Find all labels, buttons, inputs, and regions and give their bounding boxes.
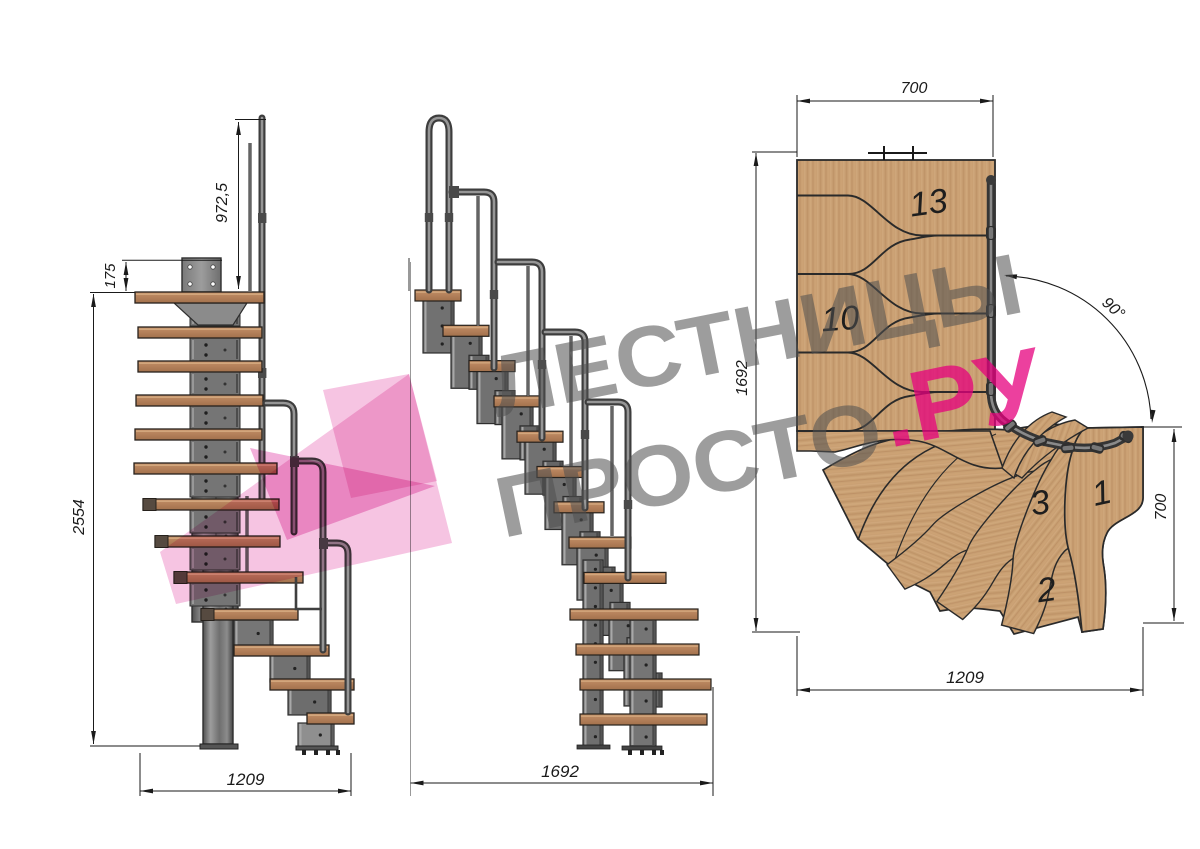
svg-text:700: 700 [1153, 494, 1170, 521]
svg-text:13: 13 [907, 182, 950, 225]
svg-text:1209: 1209 [946, 668, 984, 687]
svg-text:972,5: 972,5 [214, 183, 231, 223]
svg-text:1209: 1209 [227, 770, 265, 789]
svg-text:700: 700 [901, 80, 928, 97]
svg-text:175: 175 [102, 263, 119, 289]
svg-text:2554: 2554 [71, 499, 88, 536]
svg-text:1692: 1692 [541, 762, 579, 781]
